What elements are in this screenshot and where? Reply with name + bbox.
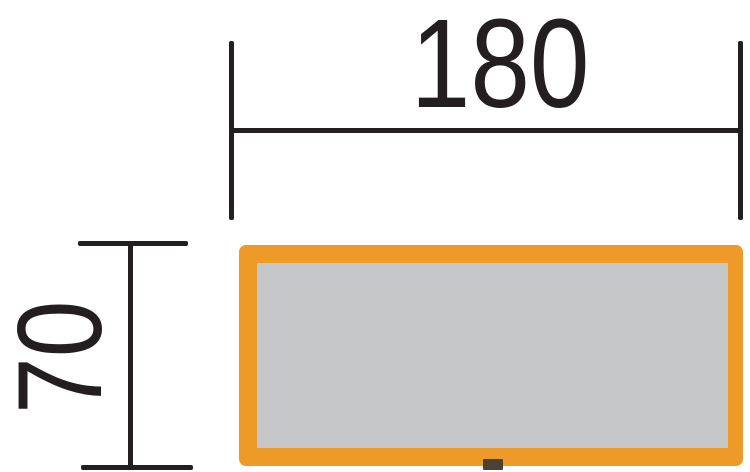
diagram-canvas: 180 70 bbox=[0, 0, 750, 472]
planter-box-bottom-marker bbox=[483, 459, 503, 470]
width-dim-label: 180 bbox=[330, 1, 670, 127]
height-dim-label: 70 bbox=[0, 207, 120, 472]
planter-box-frame bbox=[239, 245, 743, 466]
planter-box-fill bbox=[257, 263, 728, 448]
height-dim-line bbox=[128, 243, 133, 470]
width-dim-value: 180 bbox=[411, 1, 590, 127]
height-dim-value: 70 bbox=[0, 300, 120, 413]
